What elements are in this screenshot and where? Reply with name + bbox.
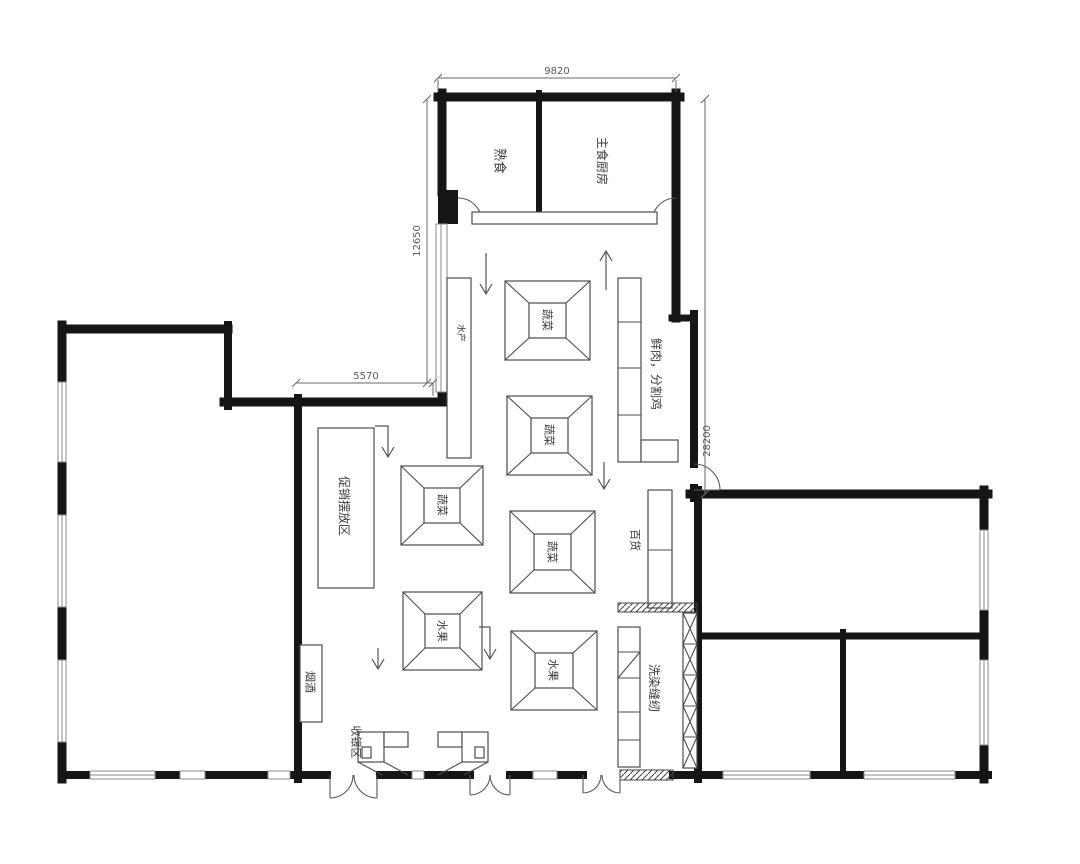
label-table-vegetable-4: 蔬菜 <box>546 541 559 563</box>
arrow-down-4 <box>372 648 384 669</box>
wall-pier <box>438 190 458 224</box>
label-general-goods: 百货 <box>629 529 643 551</box>
general-goods-shelf <box>648 490 672 608</box>
checkout-counters <box>358 732 488 775</box>
hatched-partition <box>618 603 697 612</box>
arrow-up-1 <box>600 251 612 290</box>
label-table-vegetable-3: 蔬菜 <box>436 494 449 516</box>
label-table-fruit-2: 水果 <box>547 659 560 681</box>
label-cooked-food: 熟食 <box>492 148 508 174</box>
floor-plan-drawing: 9820 12650 5570 28200 熟食 主食厨房 鲜肉，分割鸡 水产 … <box>0 0 1080 864</box>
dimension-left: 12650 <box>412 225 423 257</box>
checkout-counter-2 <box>438 732 488 775</box>
fixtures <box>300 212 697 768</box>
fresh-meat-shelf <box>618 278 678 462</box>
label-fresh-meat: 鲜肉，分割鸡 <box>649 338 664 410</box>
label-aquatic: 水产 <box>455 324 467 342</box>
dimension-right: 28200 <box>702 425 713 457</box>
dimension-top: 9820 <box>544 66 569 77</box>
label-table-vegetable-1: 蔬菜 <box>541 309 554 331</box>
display-tables <box>401 281 597 710</box>
label-cashier-zone: 收银区 <box>350 726 364 759</box>
label-table-fruit-1: 水果 <box>436 620 449 642</box>
entrance-door-right <box>583 775 620 793</box>
hatched-wall-section <box>620 770 673 780</box>
label-staple-kitchen: 主食厨房 <box>595 137 610 185</box>
dimension-inner: 5570 <box>353 371 378 382</box>
laundry-right-shelf <box>683 613 697 768</box>
laundry-left-shelf <box>618 627 640 767</box>
checkout-counter-1 <box>358 732 408 775</box>
label-table-vegetable-2: 蔬菜 <box>543 424 556 446</box>
entrance-door-left <box>330 775 377 798</box>
service-counter <box>472 212 657 224</box>
entrance-door-middle <box>470 775 510 795</box>
arrow-down-1 <box>480 253 492 294</box>
arrow-down-2 <box>375 426 394 457</box>
label-laundry-sewing: 洗染缝纫 <box>647 664 662 712</box>
arrow-down-5 <box>598 462 610 489</box>
aquatic-shelf <box>447 278 471 458</box>
floor-plan-canvas: 9820 12650 5570 28200 熟食 主食厨房 鲜肉，分割鸡 水产 … <box>0 0 1080 864</box>
label-tobacco-alcohol: 烟酒 <box>304 671 318 693</box>
label-promo-zone: 促销摆放区 <box>337 476 352 536</box>
